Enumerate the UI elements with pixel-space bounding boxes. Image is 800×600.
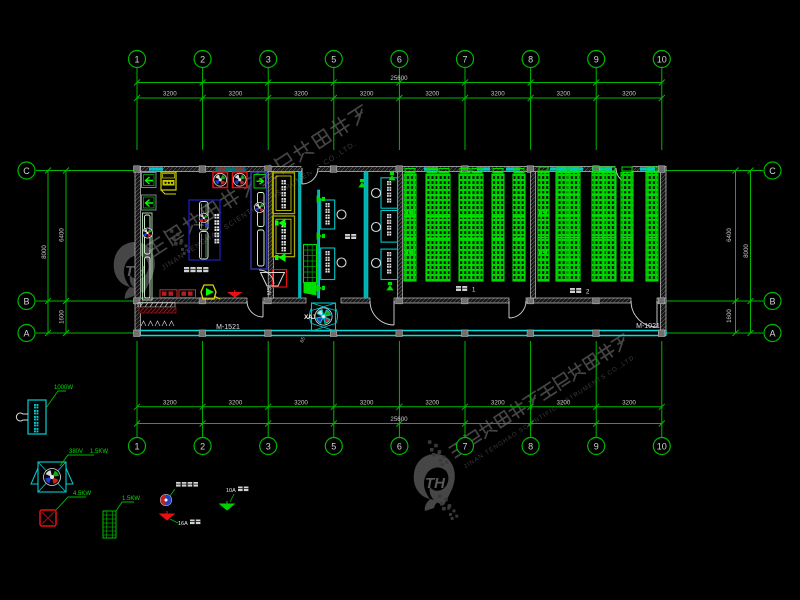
svg-text:B: B	[769, 297, 775, 307]
svg-text:6400: 6400	[59, 228, 66, 242]
svg-text:3200: 3200	[163, 91, 177, 98]
svg-text:3200: 3200	[360, 399, 374, 406]
svg-text:3: 3	[266, 55, 271, 65]
svg-text:2: 2	[200, 55, 205, 65]
svg-text:3200: 3200	[425, 91, 439, 98]
svg-text:5: 5	[331, 55, 336, 65]
svg-text:1.5KW: 1.5KW	[122, 496, 140, 502]
svg-text:10: 10	[657, 442, 667, 452]
svg-text:8000: 8000	[743, 244, 750, 258]
svg-text:3200: 3200	[622, 91, 636, 98]
svg-text:1600: 1600	[59, 310, 66, 324]
svg-text:1600: 1600	[726, 309, 733, 323]
svg-text:TH: TH	[425, 475, 446, 492]
svg-text:5: 5	[331, 442, 336, 452]
svg-text:1: 1	[134, 442, 139, 452]
svg-text:3200: 3200	[229, 91, 243, 98]
svg-text:7: 7	[462, 55, 467, 65]
svg-text:C: C	[769, 166, 776, 176]
svg-text:MS: MS	[267, 286, 273, 295]
svg-text:3200: 3200	[491, 91, 505, 98]
svg-text:3200: 3200	[294, 399, 308, 406]
svg-text:M-1521: M-1521	[216, 324, 240, 331]
svg-text:25600: 25600	[390, 416, 408, 423]
svg-text:3200: 3200	[294, 91, 308, 98]
svg-text:3200: 3200	[557, 91, 571, 98]
svg-text:9: 9	[594, 55, 599, 65]
svg-text:7: 7	[462, 442, 467, 452]
svg-text:3200: 3200	[163, 399, 177, 406]
svg-text:A: A	[769, 329, 775, 339]
svg-text:1.5KW: 1.5KW	[90, 449, 108, 455]
svg-text:3200: 3200	[557, 399, 571, 406]
svg-text:C: C	[23, 166, 30, 176]
svg-text:M-1021: M-1021	[636, 323, 660, 330]
svg-text:380V: 380V	[69, 449, 83, 455]
svg-text:8: 8	[528, 442, 533, 452]
svg-text:2: 2	[200, 442, 205, 452]
svg-text:10: 10	[657, 55, 667, 65]
svg-text:3: 3	[266, 442, 271, 452]
svg-text:6: 6	[397, 55, 402, 65]
svg-text:3200: 3200	[360, 91, 374, 98]
svg-text:25600: 25600	[390, 75, 408, 82]
svg-text:4.5KW: 4.5KW	[73, 491, 91, 497]
svg-text:8000: 8000	[41, 245, 48, 259]
svg-text:B: B	[23, 297, 29, 307]
svg-text:10A: 10A	[226, 488, 236, 494]
svg-text:3200: 3200	[622, 399, 636, 406]
svg-text:XAJ: XAJ	[304, 314, 316, 321]
svg-text:1: 1	[134, 55, 139, 65]
svg-text:6: 6	[397, 442, 402, 452]
svg-text:6400: 6400	[726, 228, 733, 242]
svg-text:1000W: 1000W	[54, 385, 73, 391]
svg-text:3200: 3200	[229, 399, 243, 406]
svg-text:8: 8	[528, 55, 533, 65]
svg-text:3200: 3200	[491, 399, 505, 406]
svg-text:16A: 16A	[178, 521, 188, 527]
svg-text:A: A	[23, 329, 29, 339]
svg-text:9: 9	[594, 442, 599, 452]
svg-text:3200: 3200	[425, 399, 439, 406]
